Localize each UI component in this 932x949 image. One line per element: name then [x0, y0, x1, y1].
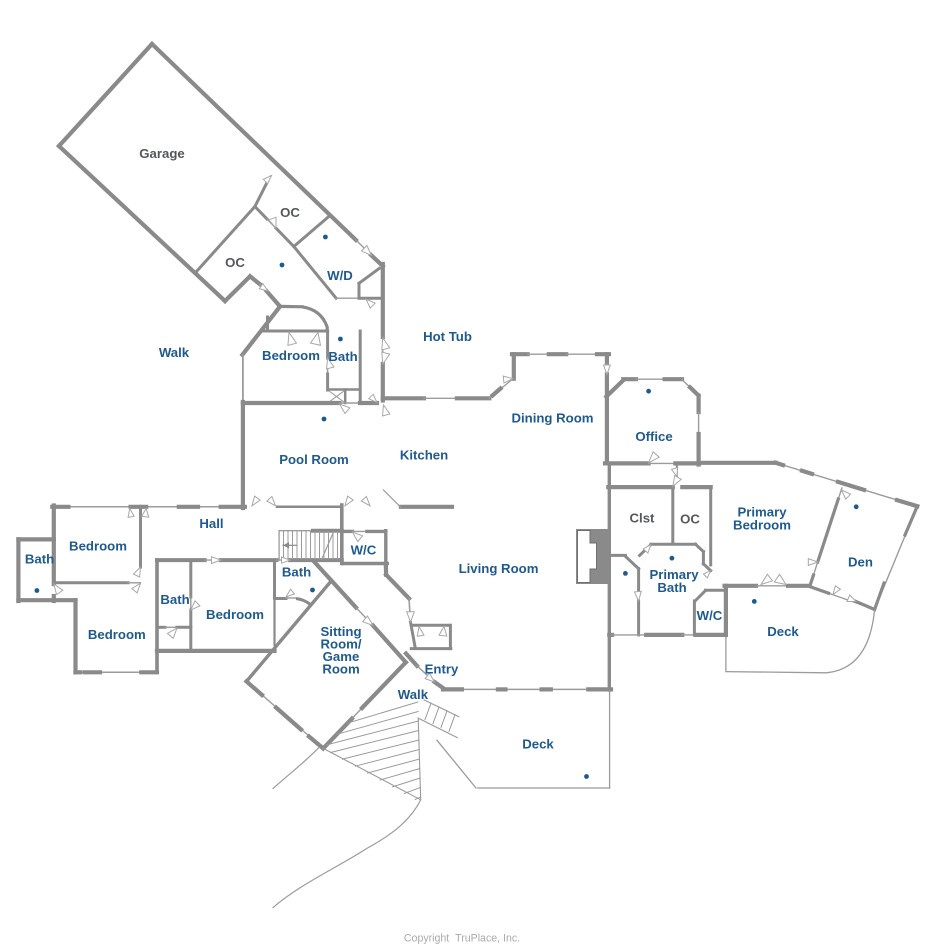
svg-text:Hot Tub: Hot Tub	[423, 329, 472, 344]
svg-text:Bath: Bath	[657, 580, 686, 595]
svg-text:OC: OC	[225, 255, 245, 270]
svg-text:W/D: W/D	[327, 268, 353, 283]
svg-text:Bedroom: Bedroom	[69, 539, 127, 554]
svg-text:Hall: Hall	[199, 516, 223, 531]
svg-text:Office: Office	[635, 429, 672, 444]
svg-text:Kitchen: Kitchen	[400, 448, 448, 463]
svg-text:Garage: Garage	[139, 146, 184, 161]
svg-text:Room: Room	[322, 662, 359, 677]
svg-text:Bedroom: Bedroom	[88, 627, 146, 642]
svg-text:Dining Room: Dining Room	[511, 411, 593, 426]
svg-text:OC: OC	[680, 512, 700, 527]
svg-text:Bedroom: Bedroom	[206, 607, 264, 622]
svg-text:Pool Room: Pool Room	[279, 452, 349, 467]
svg-text:OC: OC	[280, 205, 300, 220]
svg-text:Walk: Walk	[159, 345, 190, 360]
svg-text:Deck: Deck	[522, 737, 554, 752]
svg-text:Deck: Deck	[767, 624, 799, 639]
svg-text:Entry: Entry	[425, 662, 459, 677]
svg-text:W/C: W/C	[697, 608, 723, 623]
svg-text:W/C: W/C	[351, 543, 377, 558]
svg-text:Bath: Bath	[328, 349, 357, 364]
svg-text:Bedroom: Bedroom	[262, 348, 320, 363]
svg-text:Bedroom: Bedroom	[733, 518, 791, 533]
svg-text:Bath: Bath	[282, 565, 311, 580]
svg-text:Den: Den	[848, 555, 873, 570]
svg-text:Copyright TruPlace, Inc.: Copyright TruPlace, Inc.	[404, 933, 520, 945]
svg-text:Bath: Bath	[25, 552, 54, 567]
svg-text:Clst: Clst	[630, 511, 656, 526]
svg-text:Walk: Walk	[398, 687, 429, 702]
svg-text:Living Room: Living Room	[459, 561, 539, 576]
svg-text:Bath: Bath	[160, 592, 189, 607]
